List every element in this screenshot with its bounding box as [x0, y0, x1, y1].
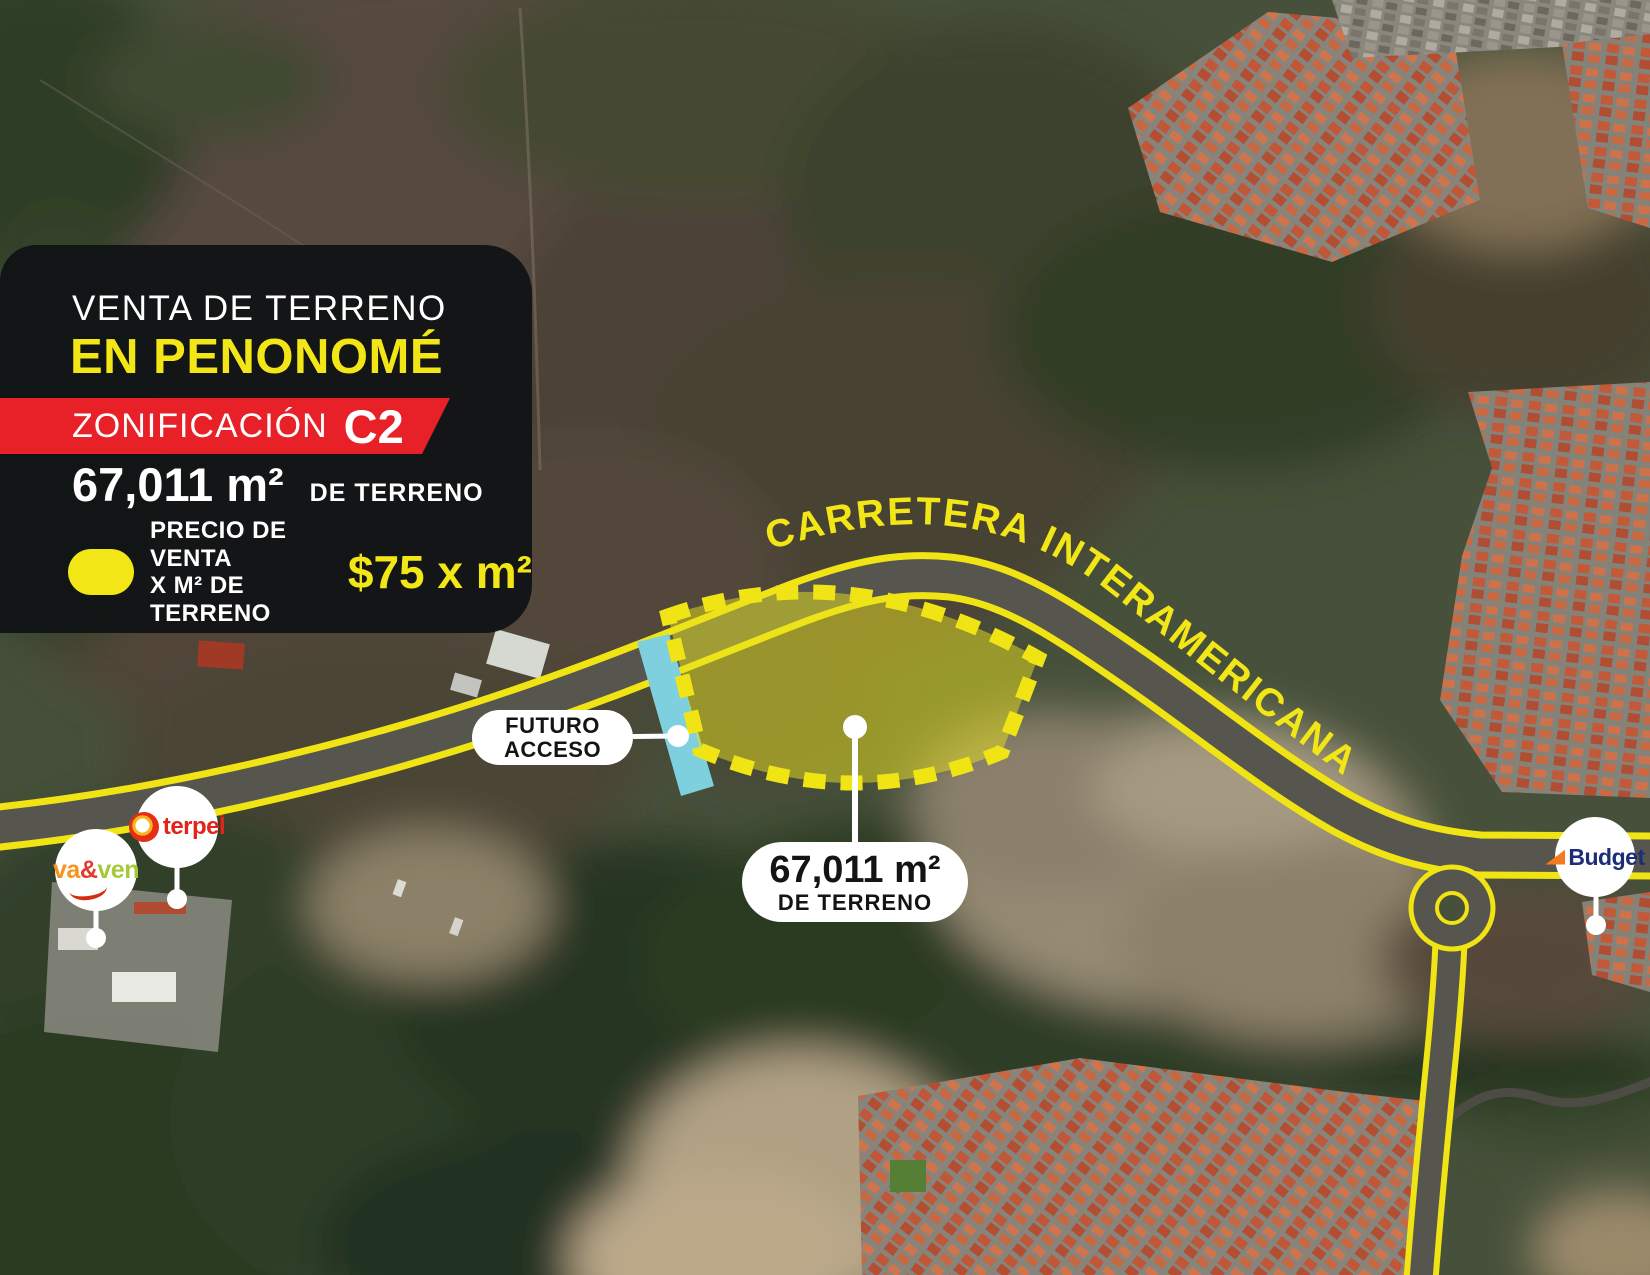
zoning-value: C2 — [344, 399, 404, 454]
terpel-logo-text: terpel — [163, 813, 225, 841]
area-value: 67,011 m² — [72, 457, 284, 512]
future-access-line2: ACCESO — [504, 738, 601, 761]
land-sale-flyer: CARRETERA INTERAMERICANA VENTA DE TERREN… — [0, 0, 1650, 1275]
price-value: $75 x m² — [348, 545, 532, 599]
vaven-logo: va&ven — [53, 858, 139, 883]
parcel-area-value: 67,011 m² — [769, 851, 940, 889]
panel-subtitle: EN PENONOMÉ — [70, 329, 443, 385]
budget-logo-text: Budget — [1568, 844, 1644, 871]
area-unit-label: DE TERRENO — [310, 479, 484, 508]
terpel-station-marker: terpel — [136, 786, 218, 868]
budget-office-marker: Budget — [1555, 817, 1635, 897]
price-row: PRECIO DE VENTA X M² DE TERRENO $75 x m² — [68, 517, 532, 627]
vaven-logo-text2: ven — [97, 856, 139, 884]
parcel-area-unit: DE TERRENO — [778, 892, 932, 914]
price-label-line1: PRECIO DE VENTA — [150, 517, 330, 572]
zoning-banner: ZONIFICACIÓN C2 — [0, 398, 450, 454]
panel-title: VENTA DE TERRENO — [72, 289, 447, 329]
future-access-line1: FUTURO — [505, 714, 600, 737]
satellite-map: CARRETERA INTERAMERICANA — [0, 0, 1650, 1275]
area-row: 67,011 m² DE TERRENO — [72, 457, 484, 512]
terpel-ring-icon — [129, 812, 159, 842]
zoning-label: ZONIFICACIÓN — [72, 407, 328, 446]
future-access-label: FUTURO ACCESO — [472, 710, 633, 765]
parcel-area-callout: 67,011 m² DE TERRENO — [742, 842, 968, 922]
vaven-station-marker: va&ven — [55, 829, 137, 911]
price-labels: PRECIO DE VENTA X M² DE TERRENO — [150, 517, 330, 627]
info-panel: VENTA DE TERRENO EN PENONOMÉ ZONIFICACIÓ… — [0, 245, 532, 633]
price-color-swatch — [68, 549, 134, 595]
price-label-line2: X M² DE TERRENO — [150, 572, 330, 627]
vaven-logo-text: va — [53, 856, 80, 884]
